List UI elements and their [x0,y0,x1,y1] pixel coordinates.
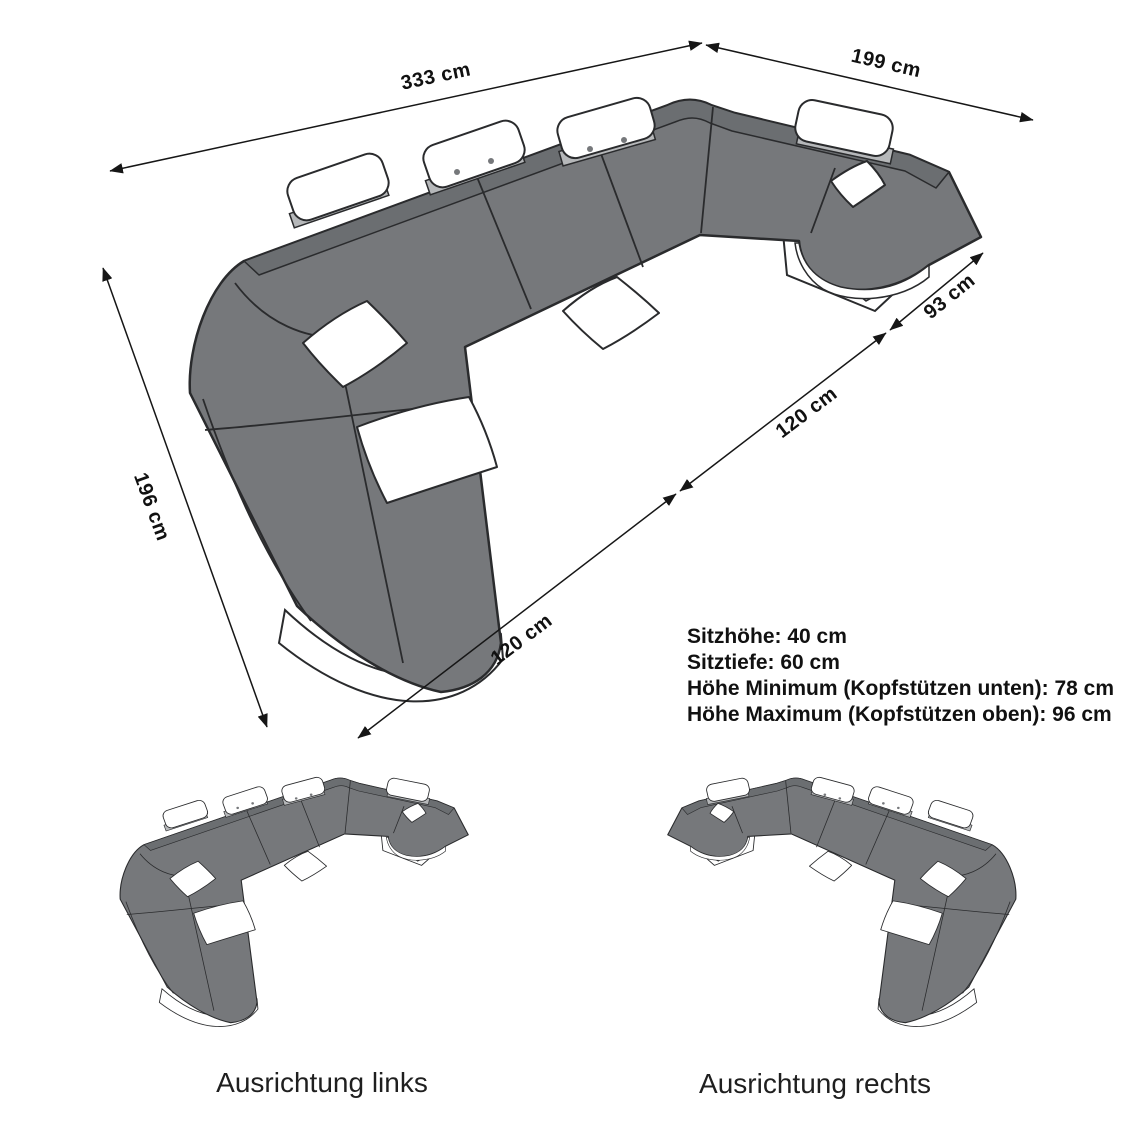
caption-orientation-right: Ausrichtung rechts [699,1068,931,1100]
sofa-illustration-left-variant [120,776,468,1027]
sofa-illustration-right-variant [668,776,1016,1027]
spec-height-min: Höhe Minimum (Kopfstützen unten): 78 cm [687,676,1114,702]
spec-text-block: Sitzhöhe: 40 cm Sitztiefe: 60 cm Höhe Mi… [687,624,1114,728]
sofa-illustration-main [190,95,981,702]
dimension-line-inner-width [680,333,886,491]
caption-orientation-left: Ausrichtung links [216,1067,428,1099]
sofa-dimension-diagram: 333 cm 199 cm 196 cm 120 cm 120 cm 93 cm… [0,0,1134,1134]
spec-seat-height: Sitzhöhe: 40 cm [687,624,1114,650]
spec-seat-depth: Sitztiefe: 60 cm [687,650,1114,676]
diagram-canvas [0,0,1134,1134]
spec-height-max: Höhe Maximum (Kopfstützen oben): 96 cm [687,702,1114,728]
